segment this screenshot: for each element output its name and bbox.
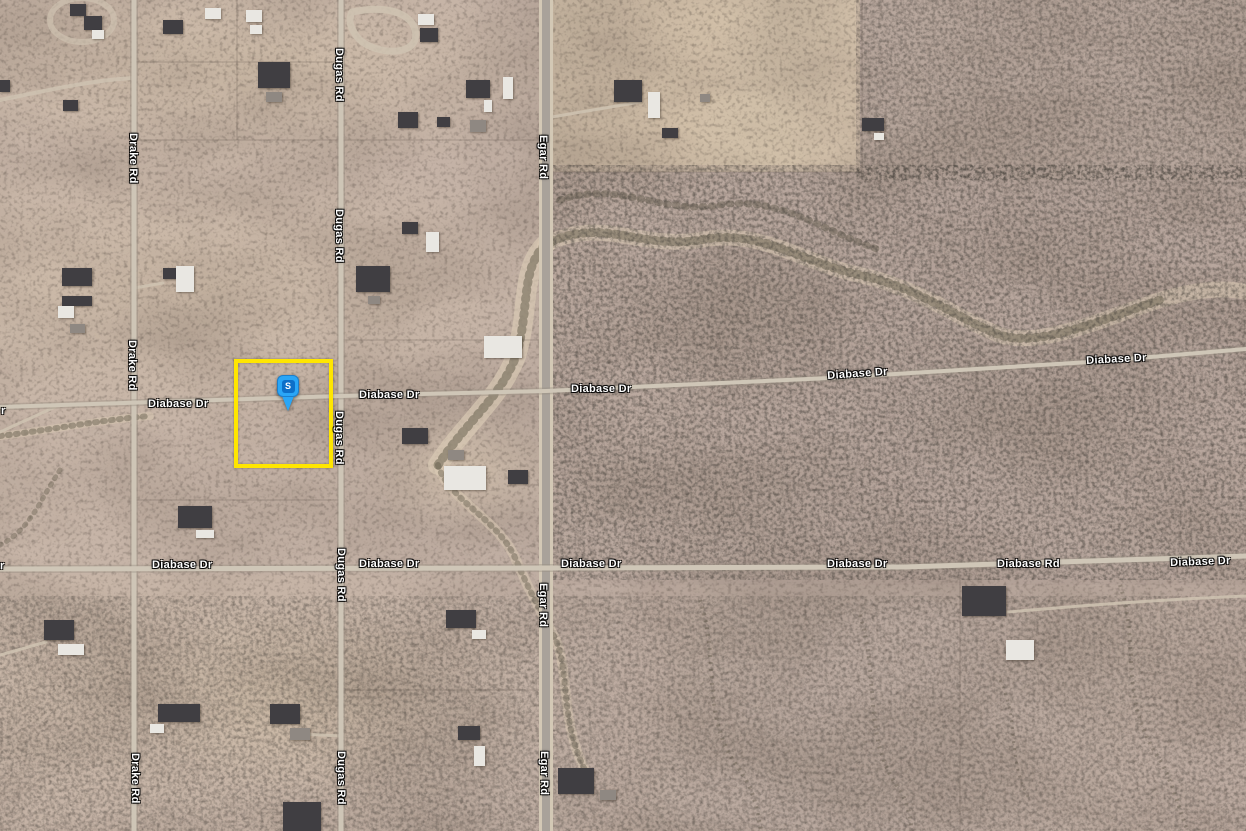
building — [446, 610, 476, 628]
road-label: r — [1, 406, 6, 417]
road-label: Drake Rd — [126, 340, 137, 391]
terrain-patch — [856, 0, 1246, 180]
building — [484, 336, 522, 358]
building — [63, 100, 78, 111]
building — [503, 77, 513, 99]
terrain-patch — [546, 165, 1246, 585]
road-label: Dugas Rd — [333, 411, 344, 465]
building — [246, 10, 262, 22]
building — [662, 128, 678, 138]
building — [1006, 640, 1034, 660]
road-label: Dugas Rd — [333, 48, 344, 102]
building — [962, 586, 1006, 616]
building — [368, 296, 380, 304]
road-label: Diabase Dr — [148, 399, 208, 410]
road-label: Diabase Dr — [1086, 353, 1147, 367]
building — [58, 644, 84, 655]
road-label: Diabase Dr — [359, 390, 419, 401]
terrain-patch — [556, 580, 1246, 831]
building — [290, 728, 310, 740]
terrain-patch — [0, 575, 560, 831]
road-label: Drake Rd — [129, 753, 140, 804]
building — [508, 470, 528, 484]
building — [700, 94, 710, 102]
map-marker-pin[interactable]: S — [277, 375, 299, 411]
terrain-patch — [150, 610, 440, 790]
road-diabase — [0, 556, 1246, 569]
road-casing — [0, 349, 1246, 407]
building — [44, 620, 74, 640]
building — [84, 16, 102, 30]
building — [558, 768, 594, 794]
building — [420, 28, 438, 42]
building — [163, 20, 183, 34]
building — [484, 100, 492, 112]
building — [448, 450, 464, 460]
building — [402, 222, 418, 234]
road-label: Diabase Dr — [561, 559, 621, 570]
building — [466, 80, 490, 98]
building — [444, 466, 486, 490]
road-label: Diabase Rd — [997, 559, 1060, 570]
building — [398, 112, 418, 128]
building — [205, 8, 221, 19]
building — [70, 324, 85, 333]
satellite-map[interactable]: Drake RdDrake RdDrake RdDugas RdDugas Rd… — [0, 0, 1246, 831]
road-label: Diabase Dr — [1170, 556, 1231, 569]
building — [270, 704, 300, 724]
building — [614, 80, 642, 102]
building — [648, 92, 660, 118]
road-diabase — [0, 349, 1246, 407]
marker-tail — [282, 396, 294, 411]
building — [356, 266, 390, 292]
building — [426, 232, 439, 252]
building — [418, 14, 434, 25]
building — [437, 117, 450, 127]
building — [158, 704, 200, 722]
road-label: Egar Rd — [537, 583, 548, 627]
building — [62, 268, 92, 286]
road-label: Diabase Dr — [827, 559, 887, 570]
road-label: Dugas Rd — [335, 548, 346, 602]
building — [258, 62, 290, 88]
building — [266, 92, 282, 102]
building — [600, 790, 616, 800]
building — [58, 306, 74, 318]
building — [70, 4, 86, 16]
building — [458, 726, 480, 740]
road-label: Egar Rd — [538, 751, 549, 795]
building — [176, 266, 194, 292]
marker-head: S — [277, 375, 299, 397]
terrain-patch — [552, 0, 860, 172]
road-label: r — [0, 561, 5, 572]
building — [862, 118, 884, 131]
road-label: Diabase Dr — [359, 559, 419, 570]
building — [474, 746, 485, 766]
road-label: Drake Rd — [127, 133, 138, 184]
building — [472, 630, 486, 639]
building — [92, 30, 104, 39]
road-label: Egar Rd — [537, 135, 548, 179]
road-label: Diabase Dr — [152, 560, 212, 571]
road-label: Diabase Dr — [571, 384, 631, 395]
road-label: Diabase Dr — [827, 367, 888, 382]
building — [874, 133, 884, 140]
building — [283, 802, 321, 831]
building — [178, 506, 212, 528]
road-label: Dugas Rd — [333, 209, 344, 263]
road-casing — [0, 556, 1246, 569]
building — [62, 296, 92, 306]
building — [196, 530, 214, 538]
marker-letter: S — [282, 380, 295, 393]
building — [402, 428, 428, 444]
building — [250, 25, 262, 34]
road-label: Dugas Rd — [335, 751, 346, 805]
building — [163, 268, 177, 279]
building — [150, 724, 164, 733]
building — [0, 80, 10, 92]
building — [470, 120, 486, 132]
